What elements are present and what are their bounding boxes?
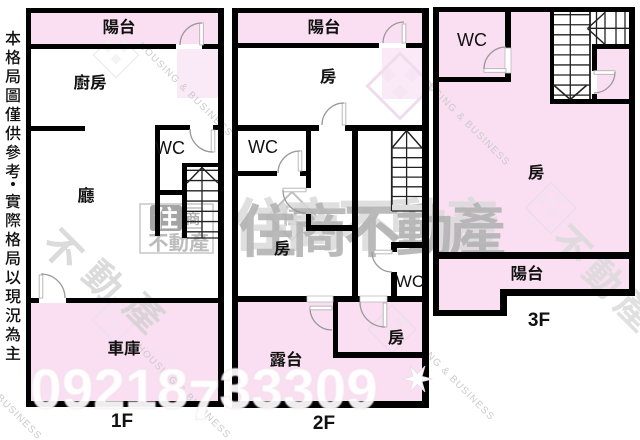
svg-text:3F: 3F — [528, 310, 550, 331]
svg-text:7: 7 — [188, 368, 219, 431]
svg-text:WC: WC — [155, 138, 185, 158]
svg-text:3: 3 — [220, 357, 251, 420]
svg-text:1: 1 — [125, 357, 156, 420]
svg-text:9: 9 — [62, 357, 93, 420]
svg-text:3: 3 — [252, 357, 283, 420]
svg-text:9: 9 — [346, 357, 377, 420]
svg-text:WC: WC — [396, 272, 424, 291]
svg-text:2: 2 — [94, 357, 125, 420]
svg-text:8: 8 — [157, 357, 188, 420]
svg-text:3: 3 — [283, 357, 314, 420]
svg-text:WC: WC — [457, 30, 487, 50]
svg-text:0: 0 — [315, 357, 346, 420]
svg-text:0: 0 — [30, 357, 61, 420]
svg-text:WC: WC — [248, 137, 278, 157]
